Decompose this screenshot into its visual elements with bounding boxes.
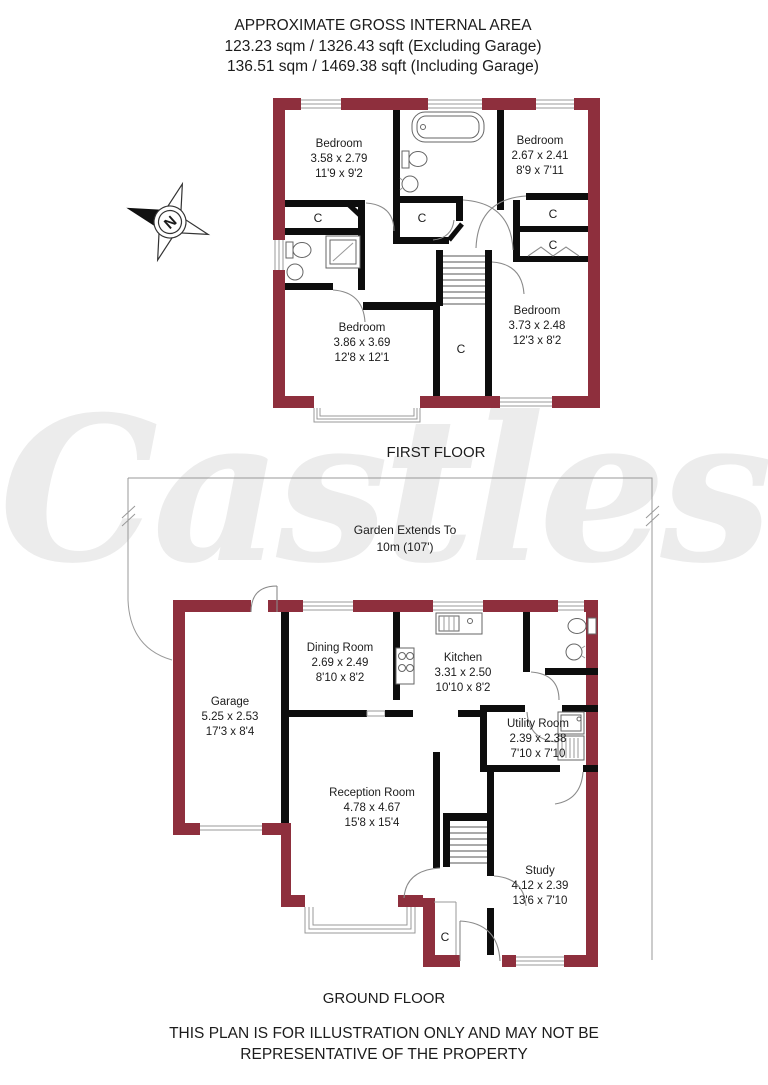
room-label-bedroom2-metric: 2.67 x 2.41 xyxy=(512,150,569,162)
room-label-kitchen-name: Kitchen xyxy=(444,652,482,664)
header-line3: 136.51 sqm / 1469.38 sqft (Including Gar… xyxy=(227,58,539,75)
wc-basin-icon xyxy=(566,644,582,660)
room-label-bedroom3-metric: 3.86 x 3.69 xyxy=(334,337,391,349)
closet-label-ff-bottom: C xyxy=(457,342,466,356)
room-label-bedroom1-imperial: 11'9 x 9'2 xyxy=(315,168,363,180)
room-label-kitchen-imperial: 10'10 x 8'2 xyxy=(436,682,491,694)
room-label-bedroom4-name: Bedroom xyxy=(514,305,561,317)
room-label-study-metric: 4.12 x 2.39 xyxy=(512,880,569,892)
room-label-bedroom2-name: Bedroom xyxy=(517,135,564,147)
room-label-utility-name: Utility Room xyxy=(507,718,569,730)
header: APPROXIMATE GROSS INTERNAL AREA 123.23 s… xyxy=(224,17,541,75)
room-label-study-name: Study xyxy=(525,865,555,877)
compass-rose: N xyxy=(116,170,221,272)
room-label-bedroom3-name: Bedroom xyxy=(339,322,386,334)
room-label-study-imperial: 13'6 x 7'10 xyxy=(513,895,568,907)
header-line2: 123.23 sqm / 1326.43 sqft (Excluding Gar… xyxy=(224,38,541,55)
first-floor-plan: Bedroom 3.58 x 2.79 11'9 x 9'2 Bedroom 2… xyxy=(273,98,600,423)
room-label-bedroom1-name: Bedroom xyxy=(316,138,363,150)
ensuite-basin-icon xyxy=(287,264,303,280)
ensuite-toilet-icon xyxy=(286,242,293,258)
room-label-reception-name: Reception Room xyxy=(329,787,415,799)
room-label-dining-metric: 2.69 x 2.49 xyxy=(312,657,369,669)
garden-note-line1: Garden Extends To xyxy=(354,523,457,537)
garden-note-line2: 10m (107') xyxy=(377,540,434,554)
closet-label-ff-left: C xyxy=(314,211,323,225)
toilet-icon xyxy=(402,151,409,168)
bath-tap-icon xyxy=(421,125,426,130)
disclaimer-line1: THIS PLAN IS FOR ILLUSTRATION ONLY AND M… xyxy=(169,1025,599,1042)
ground-floor-plan: Garage 5.25 x 2.53 17'3 x 8'4 Dining Roo… xyxy=(173,586,610,967)
room-label-reception-metric: 4.78 x 4.67 xyxy=(344,802,401,814)
room-label-bedroom3-imperial: 12'8 x 12'1 xyxy=(335,352,390,364)
room-label-bedroom2-imperial: 8'9 x 7'11 xyxy=(516,165,564,177)
room-label-bedroom4-metric: 3.73 x 2.48 xyxy=(509,320,566,332)
room-label-bedroom4-imperial: 12'3 x 8'2 xyxy=(513,335,562,347)
closet-label-gf-hall: C xyxy=(441,930,450,944)
closet-label-ff-middle: C xyxy=(418,211,427,225)
first-floor-label: FIRST FLOOR xyxy=(387,444,486,461)
floorplan-page: Castles APPROXIMATE GROSS INTERNAL AREA … xyxy=(0,0,768,1085)
ground-floor-label: GROUND FLOOR xyxy=(323,990,446,1007)
closet-label-ff-right2: C xyxy=(549,238,558,252)
room-label-utility-metric: 2.39 x 2.38 xyxy=(510,733,567,745)
disclaimer-line2: REPRESENTATIVE OF THE PROPERTY xyxy=(240,1046,527,1063)
room-label-utility-imperial: 7'10 x 7'10 xyxy=(511,748,566,760)
room-label-garage-imperial: 17'3 x 8'4 xyxy=(206,726,255,738)
floorplan-svg: Castles APPROXIMATE GROSS INTERNAL AREA … xyxy=(0,0,768,1085)
room-label-bedroom1-metric: 3.58 x 2.79 xyxy=(311,153,368,165)
room-label-garage-metric: 5.25 x 2.53 xyxy=(202,711,259,723)
basin-icon xyxy=(402,176,418,192)
room-label-dining-imperial: 8'10 x 8'2 xyxy=(316,672,365,684)
header-line1: APPROXIMATE GROSS INTERNAL AREA xyxy=(234,17,532,34)
room-label-kitchen-metric: 3.31 x 2.50 xyxy=(435,667,492,679)
study-hall-plate xyxy=(427,750,610,967)
wc-toilet-icon xyxy=(588,618,596,634)
room-label-reception-imperial: 15'8 x 15'4 xyxy=(345,817,401,829)
room-label-dining-name: Dining Room xyxy=(307,642,373,654)
room-label-garage-name: Garage xyxy=(211,696,249,708)
closet-label-ff-right1: C xyxy=(549,207,558,221)
